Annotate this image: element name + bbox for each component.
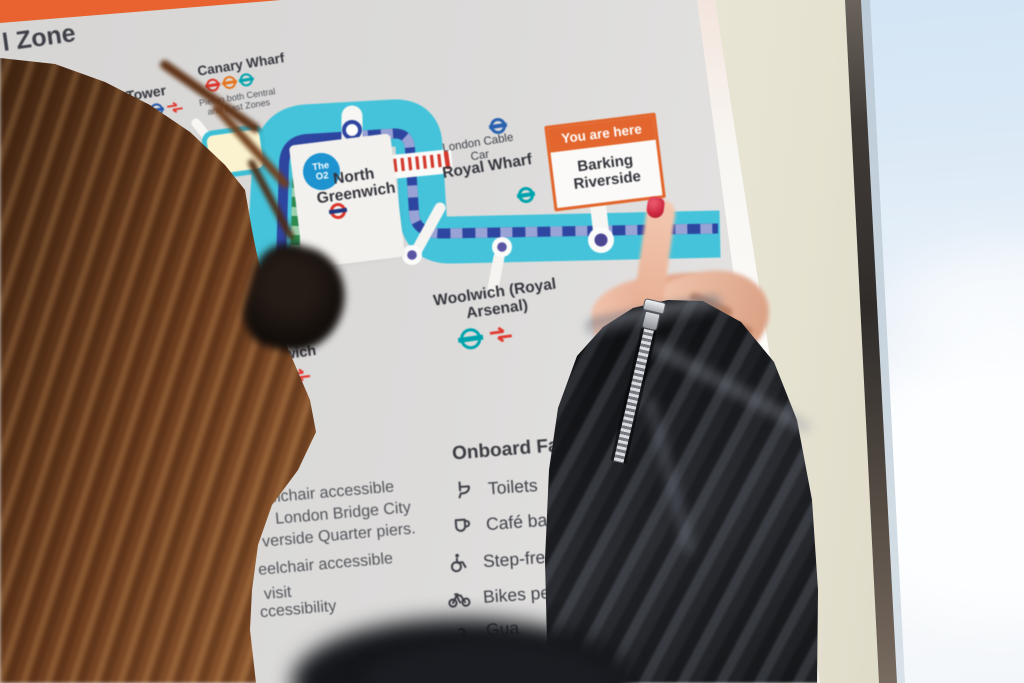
pier-marker-dot (497, 242, 507, 252)
national-rail-icon (487, 324, 515, 344)
photo-of-route-map-sign: l Zone Tower Canary Wharf Pier in both C… (0, 0, 1024, 683)
river-roundel-teal-icon (459, 327, 483, 351)
current-station-name: Barking Riverside (550, 140, 662, 208)
interchange-dot-blue (344, 122, 360, 138)
pier-marker-dot (407, 250, 417, 260)
national-rail-icon (165, 100, 185, 115)
facility-label: Café bar (485, 509, 553, 535)
river-roundel-orange-icon (222, 75, 237, 90)
facility-label: Toilets (487, 475, 538, 499)
you-are-here-flag: You are here Barking Riverside (544, 112, 666, 211)
bicycle-icon (446, 586, 472, 612)
toilet-icon (451, 477, 477, 503)
cafe-cup-icon (449, 513, 475, 539)
terminus-marker-dot (595, 234, 608, 247)
river-roundel-teal-icon (239, 72, 254, 87)
step-free-access-icon (446, 550, 472, 576)
